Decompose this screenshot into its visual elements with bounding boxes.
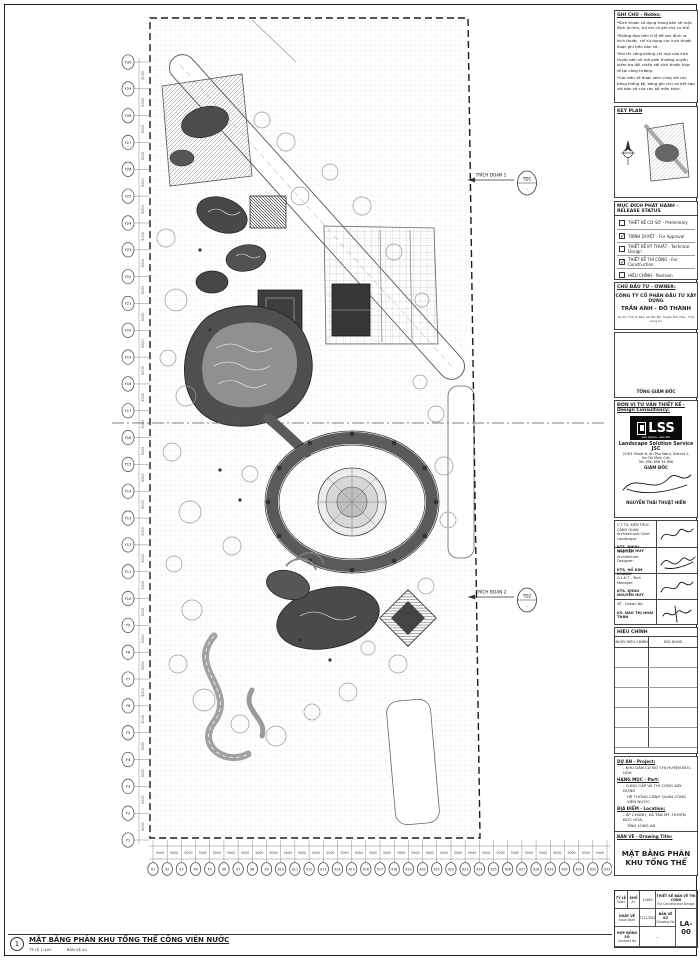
svg-text:Y21: Y21 [125, 302, 132, 306]
sheet-number-cell: LA-00 [676, 909, 697, 947]
footer-divider [8, 934, 612, 935]
sheet-size: BẢN VẼ A1 [67, 947, 87, 952]
svg-text:Y20: Y20 [125, 329, 132, 333]
svg-text:5000: 5000 [141, 152, 145, 161]
signature-mark [657, 521, 697, 547]
title-table: TỶ LỆScale KHỔA1 1/400 THIẾT KẾ BẢN VẼ T… [614, 890, 698, 948]
north-arrow-icon [621, 141, 635, 165]
location-line2: TỈNH LONG AN [615, 822, 697, 828]
location-line1: - ẤP CHÁNH, XÃ TÂN MỸ, HUYỆN ĐỨC HÒA, [615, 811, 697, 822]
consultant-tel: Tel: (08) 898 54 698 [615, 460, 697, 464]
svg-text:X28: X28 [533, 867, 539, 871]
svg-text:5000: 5000 [141, 286, 145, 295]
svg-text:X22: X22 [448, 867, 454, 871]
svg-text:5000: 5000 [141, 688, 145, 697]
revision-rows [615, 648, 697, 748]
release-row: ✓THIẾT KẾ THI CÔNG - For Construction [617, 255, 695, 268]
svg-text:X12: X12 [306, 867, 312, 871]
svg-text:5000: 5000 [141, 500, 145, 509]
svg-text:5000: 5000 [141, 339, 145, 348]
svg-text:Y27: Y27 [125, 141, 132, 145]
svg-text:X18: X18 [391, 867, 397, 871]
dwgno-label-cell: BẢN VẼ SỐDrawing No [656, 909, 676, 927]
svg-text:Y16: Y16 [125, 436, 132, 440]
svg-text:X15: X15 [349, 867, 355, 871]
keyplan-map [615, 115, 697, 191]
svg-text:X17: X17 [377, 867, 383, 871]
svg-text:5000: 5000 [156, 851, 164, 855]
svg-text:X1: X1 [151, 867, 155, 871]
svg-text:5000: 5000 [355, 851, 363, 855]
svg-text:Y28: Y28 [125, 114, 132, 118]
svg-text:5000: 5000 [141, 554, 145, 563]
svg-text:X6: X6 [222, 867, 226, 871]
svg-text:5000: 5000 [141, 634, 145, 643]
svg-text:5000: 5000 [141, 822, 145, 831]
size-cell: KHỔA1 [628, 891, 640, 909]
svg-text:Y3: Y3 [126, 785, 130, 789]
svg-text:5000: 5000 [141, 366, 145, 375]
svg-text:5000: 5000 [426, 851, 434, 855]
part-line1: - CUNG CẤP VÀ THI CÔNG XÂY DỰNG [615, 782, 697, 793]
signature-mark [657, 574, 697, 599]
consultant-title: ĐƠN VỊ TƯ VẤN THIẾT KẾ - Design Consulta… [615, 401, 697, 414]
svg-text:5000: 5000 [340, 851, 348, 855]
svg-text:5000: 5000 [141, 232, 145, 241]
drawing-title-label: BẢN VẼ - Drawing Title: [615, 831, 697, 841]
contract-value-cell: ... [640, 927, 676, 947]
svg-text:Y30: Y30 [125, 60, 132, 64]
svg-text:X32: X32 [590, 867, 596, 871]
release-row: THIẾT KẾ CƠ SỞ - Preliminary [617, 216, 695, 229]
project-box: DỰ ÁN - Project: - KHU DÂN CƯ ĐÔ THỊ HUY… [614, 756, 698, 876]
svg-text:5000: 5000 [312, 851, 320, 855]
release-row: HIỆU CHỈNH - Revision [617, 268, 695, 280]
checkbox-checked-icon: ✓ [619, 259, 625, 265]
status-cell: THIẾT KẾ BẢN VẼ THI CÔNGFor Construction… [656, 891, 697, 909]
svg-text:X33: X33 [604, 867, 610, 871]
contract-label-cell: HỢP ĐỒNG SỐContract No [615, 927, 640, 947]
zone-wave-pool [184, 306, 312, 426]
release-box: MỤC ĐÍCH PHÁT HÀNH - RELEASE STATUS THIẾ… [614, 201, 698, 280]
detail-number-bubble: 1 [10, 937, 24, 951]
svg-text:X3: X3 [179, 867, 183, 871]
signer-role: THIẾT KẾ - Architecture Designer: [617, 550, 654, 564]
svg-text:5000: 5000 [511, 851, 519, 855]
svg-text:X4: X4 [193, 867, 197, 871]
svg-text:5000: 5000 [497, 851, 505, 855]
revision-empty-row [615, 728, 697, 748]
svg-text:5000: 5000 [525, 851, 533, 855]
svg-text:Y29: Y29 [125, 87, 132, 91]
svg-text:5000: 5000 [184, 851, 192, 855]
callout-trich-doan-2: TRÍCH ĐOẠN 2 TĐ2 - [468, 588, 537, 612]
checkbox-empty-icon [619, 272, 625, 278]
svg-text:5000: 5000 [369, 851, 377, 855]
notes-title: GHI CHÚ - Notes: [615, 11, 697, 19]
svg-text:5000: 5000 [141, 98, 145, 107]
svg-text:Y17: Y17 [125, 409, 132, 413]
note-item: *Các bản vẽ được xem cùng với các bảng t… [615, 74, 697, 92]
svg-text:5000: 5000 [141, 71, 145, 80]
svg-text:5000: 5000 [553, 851, 561, 855]
svg-text:X26: X26 [505, 867, 511, 871]
svg-text:X23: X23 [462, 867, 468, 871]
revision-col-content: NỘI DUNG [649, 640, 697, 644]
svg-text:5000: 5000 [141, 715, 145, 724]
svg-text:Y23: Y23 [125, 248, 132, 252]
release-title: MỤC ĐÍCH PHÁT HÀNH - RELEASE STATUS [615, 202, 697, 216]
svg-text:TRÍCH ĐOẠN 2: TRÍCH ĐOẠN 2 [475, 590, 507, 595]
svg-text:X11: X11 [292, 867, 298, 871]
svg-text:5000: 5000 [141, 795, 145, 804]
svg-text:Y9: Y9 [126, 624, 131, 628]
part-line2: HỆ THỐNG CẢNH QUAN CÔNG VIÊN NƯỚC [615, 793, 697, 804]
sheet-title: MẶT BẰNG PHÂN KHU TỔNG THỂ CÔNG VIÊN NƯỚ… [29, 937, 229, 945]
notes-box: GHI CHÚ - Notes: *Kích thước sử dụng tro… [614, 10, 698, 103]
revision-empty-row [615, 708, 697, 728]
owner-address: Ấp 4C, Tỉnh lộ 824, Xã Tân Mỹ, Huyện Đức… [615, 315, 697, 323]
svg-text:5000: 5000 [141, 769, 145, 778]
checkbox-checked-icon: ✓ [619, 233, 625, 239]
svg-text:X14: X14 [334, 867, 340, 871]
svg-text:X9: X9 [264, 867, 268, 871]
svg-text:Y6: Y6 [126, 704, 131, 708]
svg-text:5000: 5000 [468, 851, 476, 855]
road-east-parcel [448, 386, 474, 558]
note-item: *Khi thi công không chỉ dựa vào kích thư… [615, 50, 697, 74]
signer-name: KS. ĐÀO THỊ HOÀI THÂN [617, 611, 654, 619]
release-row: ✓TRÌNH DUYỆT - For Approval [617, 229, 695, 242]
svg-text:5000: 5000 [397, 851, 405, 855]
svg-text:5000: 5000 [482, 851, 490, 855]
svg-text:5000: 5000 [440, 851, 448, 855]
signers-box: C.T TK. KIẾN TRÚC CẢNH QUANArchitectural… [614, 520, 698, 625]
svg-text:5000: 5000 [454, 851, 462, 855]
lss-logo-tagline: see green...see life [630, 435, 682, 439]
central-plaza [318, 468, 386, 536]
svg-text:Y8: Y8 [126, 651, 131, 655]
svg-text:Y11: Y11 [125, 570, 132, 574]
svg-text:Y19: Y19 [125, 355, 132, 359]
svg-text:5000: 5000 [567, 851, 575, 855]
svg-text:X13: X13 [320, 867, 326, 871]
svg-text:Y26: Y26 [125, 168, 132, 172]
owner-box: CHỦ ĐẦU TƯ - OWNER: CÔNG TY CỔ PHẦN ĐẦU … [614, 282, 698, 330]
svg-text:Y12: Y12 [125, 543, 132, 547]
svg-text:5000: 5000 [582, 851, 590, 855]
svg-text:Y18: Y18 [125, 382, 132, 386]
svg-text:5000: 5000 [170, 851, 178, 855]
svg-text:X24: X24 [476, 867, 482, 871]
lss-logo-text: LSS [648, 422, 674, 435]
revision-box: HIỆU CHỈNH NGÀY HIỆU CHỈNH NỘI DUNG [614, 627, 698, 754]
svg-text:Y4: Y4 [126, 758, 131, 762]
lss-logo-tree-icon [637, 422, 646, 435]
owner-sign-box: TỔNG GIÁM ĐỐC [614, 332, 698, 398]
owner-company-line1: CÔNG TY CỔ PHẦN ĐẦU TƯ XÂY DỰNG [615, 294, 697, 304]
svg-text:5000: 5000 [141, 608, 145, 617]
svg-text:5000: 5000 [284, 851, 292, 855]
svg-text:X25: X25 [490, 867, 496, 871]
svg-text:X27: X27 [519, 867, 525, 871]
signature-mark [657, 548, 697, 573]
date-label-cell: NGÀY VẼIssue Date [615, 909, 640, 927]
lss-logo: LSS see green...see life [630, 416, 682, 440]
svg-text:5000: 5000 [141, 661, 145, 670]
svg-text:TĐ2: TĐ2 [522, 594, 532, 599]
signer-role: Q.L.K.T - Tech Manager: [617, 576, 654, 585]
svg-text:5000: 5000 [141, 205, 145, 214]
svg-text:5000: 5000 [141, 259, 145, 268]
signer-name: KTS. KHUU NGUYỄN HUY [617, 589, 654, 597]
svg-text:5000: 5000 [141, 527, 145, 536]
svg-text:5000: 5000 [227, 851, 235, 855]
svg-text:TRÍCH ĐOẠN 1: TRÍCH ĐOẠN 1 [475, 173, 507, 178]
owner-sign-title: TỔNG GIÁM ĐỐC [615, 389, 697, 394]
drawing-sheet: TRÍCH ĐOẠN 1 TĐ1 - TRÍCH ĐOẠN 2 TĐ2 - Y3… [0, 0, 700, 960]
release-label: THIẾT KẾ CƠ SỞ - Preliminary [628, 220, 688, 225]
svg-text:TĐ1: TĐ1 [522, 177, 532, 182]
svg-text:Y10: Y10 [125, 597, 132, 601]
svg-text:Y2: Y2 [126, 811, 130, 815]
svg-text:Y15: Y15 [125, 463, 132, 467]
svg-text:5000: 5000 [383, 851, 391, 855]
release-label: TRÌNH DUYỆT - For Approval [628, 234, 684, 239]
release-list: THIẾT KẾ CƠ SỞ - Preliminary✓TRÌNH DUYỆT… [615, 216, 697, 280]
svg-text:5000: 5000 [141, 474, 145, 483]
svg-text:5000: 5000 [255, 851, 263, 855]
signer-role: VẼ - Drawn By: [617, 602, 654, 607]
consultant-company: Landscape Solution Service JSC [615, 442, 697, 452]
signer-role: C.T TK. KIẾN TRÚC CẢNH QUAN [617, 523, 654, 532]
svg-text:Y7: Y7 [126, 677, 130, 681]
project-name: - KHU DÂN CƯ ĐÔ THỊ HUYỆN ĐỨC HÒA [615, 764, 697, 775]
svg-text:X19: X19 [405, 867, 411, 871]
building-pavilion-1 [250, 196, 286, 228]
checkbox-empty-icon [619, 246, 625, 252]
svg-text:Y24: Y24 [125, 221, 132, 225]
consultant-box: ĐƠN VỊ TƯ VẤN THIẾT KẾ - Design Consulta… [614, 400, 698, 518]
svg-text:X21: X21 [434, 867, 440, 871]
revision-empty-row [615, 668, 697, 688]
keyplan-box: KEY PLAN [614, 106, 698, 198]
grid-axis-left: Y305000Y295000Y285000Y275000Y265000Y2550… [122, 55, 150, 847]
release-label: THIẾT KẾ THI CÔNG - For Construction [628, 257, 695, 267]
svg-text:5000: 5000 [141, 313, 145, 322]
signer-row: C.T TK. KIẾN TRÚC CẢNH QUANArchitectural… [615, 521, 697, 547]
svg-text:Y5: Y5 [126, 731, 130, 735]
svg-text:X16: X16 [363, 867, 369, 871]
svg-text:5000: 5000 [270, 851, 278, 855]
svg-text:5000: 5000 [141, 581, 145, 590]
signer-row: VẼ - Drawn By:KS. ĐÀO THỊ HOÀI THÂN [615, 599, 697, 625]
svg-text:5000: 5000 [141, 125, 145, 134]
site-plan-drawing: TRÍCH ĐOẠN 1 TĐ1 - TRÍCH ĐOẠN 2 TĐ2 - Y3… [6, 6, 612, 932]
drawing-title: MẶT BẰNG PHÂN KHU TỔNG THỂ [615, 849, 697, 867]
svg-text:5000: 5000 [141, 393, 145, 402]
scale-value-cell: 1/400 [640, 891, 656, 909]
svg-text:5000: 5000 [539, 851, 547, 855]
checkbox-empty-icon [619, 220, 625, 226]
revision-header: NGÀY HIỆU CHỈNH NỘI DUNG [615, 636, 697, 648]
svg-text:5000: 5000 [241, 851, 249, 855]
svg-text:Y25: Y25 [125, 194, 132, 198]
notes-list: *Kích thước sử dụng trong bản vẽ mặc địn… [615, 19, 697, 93]
svg-text:5000: 5000 [141, 742, 145, 751]
svg-text:Y14: Y14 [125, 490, 132, 494]
release-row: THIẾT KẾ KỸ THUẬT - Technical Design [617, 242, 695, 255]
svg-text:X29: X29 [547, 867, 553, 871]
svg-text:X31: X31 [576, 867, 582, 871]
consultant-sign-name: NGUYỄN THÁI THUẬT HIỀN [615, 500, 697, 505]
svg-text:X7: X7 [236, 867, 240, 871]
signer-role-en: Architectural Chief Landscape: [617, 532, 654, 541]
date-value-cell: 07/12/2021 [640, 909, 656, 927]
svg-text:5000: 5000 [141, 447, 145, 456]
svg-text:Y22: Y22 [125, 275, 132, 279]
svg-text:X8: X8 [250, 867, 254, 871]
revision-title: HIỆU CHỈNH [615, 628, 697, 636]
scale-label-cell: TỶ LỆScale [615, 891, 628, 909]
director-signature [615, 470, 697, 496]
release-label: HIỆU CHỈNH - Revision [628, 273, 673, 278]
zone-entry-plaza [162, 74, 252, 186]
svg-text:5000: 5000 [213, 851, 221, 855]
svg-text:X30: X30 [561, 867, 567, 871]
svg-text:5000: 5000 [298, 851, 306, 855]
sheet-footer: 1 MẶT BẰNG PHÂN KHU TỔNG THỂ CÔNG VIÊN N… [10, 937, 610, 957]
grid-axis-bottom: X15000X25000X35000X45000X55000X65000X750… [148, 840, 612, 875]
signature-mark [657, 600, 697, 625]
revision-empty-row [615, 688, 697, 708]
svg-text:5000: 5000 [326, 851, 334, 855]
svg-text:Y13: Y13 [125, 516, 132, 520]
svg-text:5000: 5000 [411, 851, 419, 855]
svg-text:5000: 5000 [199, 851, 207, 855]
callout-trich-doan-1: TRÍCH ĐOẠN 1 TĐ1 - [468, 171, 537, 195]
owner-company-line2: TRẦN ANH - ĐÔ THÀNH [615, 306, 697, 312]
sheet-scale: TỶ LỆ 1:400 [29, 947, 52, 952]
release-label: THIẾT KẾ KỸ THUẬT - Technical Design [628, 244, 695, 254]
svg-text:X5: X5 [208, 867, 212, 871]
signer-row: Q.L.K.T - Tech Manager:KTS. KHUU NGUYỄN … [615, 573, 697, 599]
owner-title: CHỦ ĐẦU TƯ - OWNER: [615, 283, 697, 291]
signer-row: THIẾT KẾ - Architecture Designer:KTS. HỒ… [615, 547, 697, 573]
revision-empty-row [615, 648, 697, 668]
revision-col-date: NGÀY HIỆU CHỈNH [615, 637, 649, 647]
svg-text:5000: 5000 [141, 420, 145, 429]
svg-text:5000: 5000 [141, 178, 145, 187]
svg-text:X10: X10 [278, 867, 284, 871]
svg-text:Y1: Y1 [126, 838, 130, 842]
svg-text:X2: X2 [165, 867, 169, 871]
svg-text:X20: X20 [419, 867, 425, 871]
note-item: *Kích thước sử dụng trong bản vẽ mặc địn… [615, 19, 697, 32]
svg-text:5000: 5000 [596, 851, 604, 855]
keyplan-title: KEY PLAN [615, 107, 697, 115]
note-item: *Không dựa trên tỉ lệ để xác định ra kíc… [615, 32, 697, 50]
signers-list: C.T TK. KIẾN TRÚC CẢNH QUANArchitectural… [615, 521, 697, 625]
